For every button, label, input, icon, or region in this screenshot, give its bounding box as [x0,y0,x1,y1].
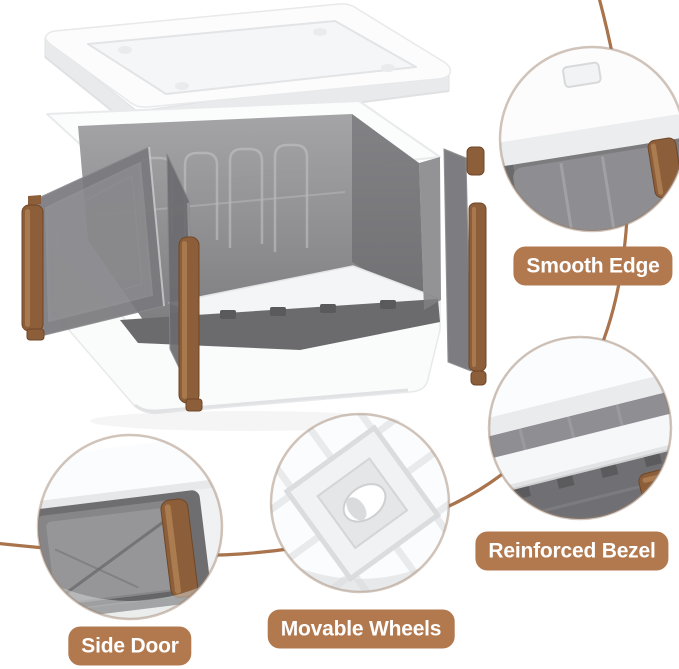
front-door-handle [179,237,202,411]
right-door-handles [467,147,486,385]
left-door [22,147,164,340]
reinforced-bezel-label: Reinforced Bezel [475,532,668,571]
smooth-edge-label: Smooth Edge [513,247,672,286]
movable-wheels-label: Movable Wheels [268,610,455,649]
product-feature-image: Smooth Edge Reinforced Bezel Movable Whe… [0,0,679,669]
product-photo [22,4,486,431]
right-door-panel [444,149,471,371]
side-door-zoom-content [15,424,278,637]
lid-handle-slot [562,62,601,87]
right-door [444,147,486,385]
callout-circle-side-door [15,424,278,637]
callout-circle-smooth-edge [476,28,679,277]
side-door-label: Side Door [68,627,191,666]
left-door-handle [22,195,44,340]
